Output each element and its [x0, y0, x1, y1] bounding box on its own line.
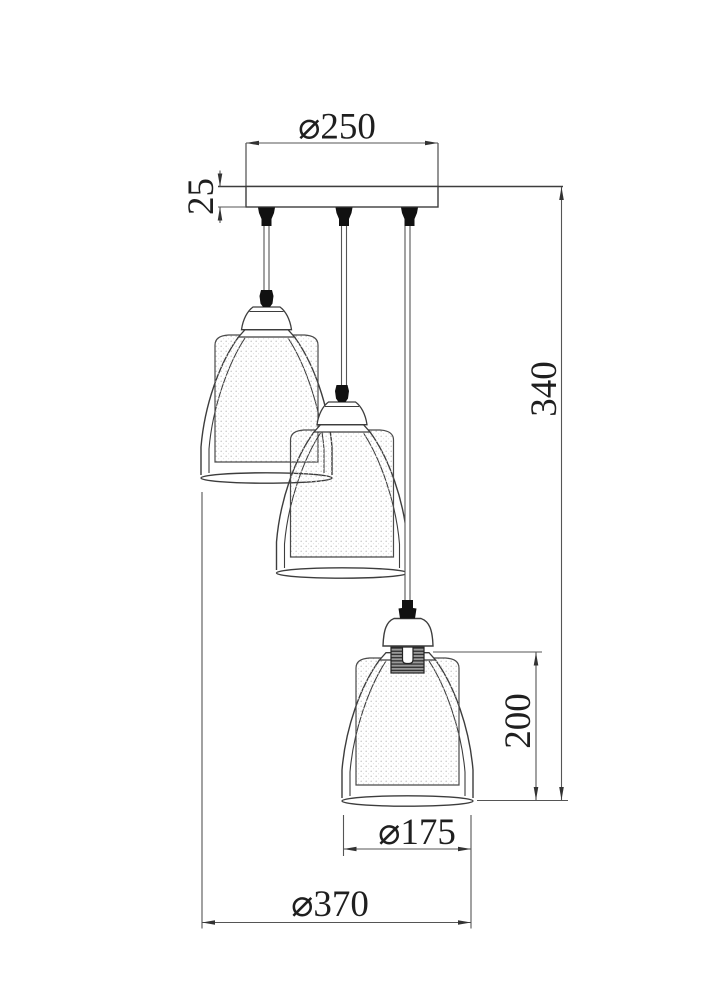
shade-3-socket-cup [383, 619, 433, 647]
shade-2-neck-band [314, 425, 370, 432]
shade-2-socket-cap [335, 385, 349, 402]
canopy-plate [246, 187, 438, 208]
label-shade-height: 200 [498, 693, 539, 749]
shade-2-bottom-rim [277, 568, 408, 578]
shade-2-frosted-inner [291, 430, 394, 557]
shade-3-frosted-inner [356, 658, 459, 785]
label-shade-diameter: ⌀175 [378, 812, 456, 853]
ceiling-canopy [218, 143, 563, 207]
label-canopy-thickness: 25 [181, 178, 222, 215]
canopy-cord-grips [258, 208, 418, 227]
cord-3-core [405, 226, 410, 602]
pendant-lamp-drawing: ⌀250 25 340 200 ⌀175 ⌀370 [0, 0, 707, 1000]
shade-3-bottom-rim [342, 796, 473, 806]
cord-1-core [264, 226, 269, 290]
shade-3-socket-contact [403, 647, 414, 664]
technical-drawing-page: ⌀250 25 340 200 ⌀175 ⌀370 [0, 0, 707, 1000]
shade-2-lamp-holder [317, 402, 367, 425]
label-canopy-diameter: ⌀250 [298, 107, 376, 148]
cord-grip-2 [336, 208, 353, 227]
cord-grip-3 [401, 208, 418, 227]
shade-3-socket-cap [399, 600, 417, 619]
cord-grip-1 [258, 208, 275, 227]
shade-1-neck-band [239, 330, 295, 337]
shade-3 [342, 600, 473, 806]
label-overall-width: ⌀370 [291, 884, 369, 925]
cord-2-core [342, 226, 347, 385]
label-drop-height: 340 [524, 361, 565, 417]
shade-1-lamp-holder [242, 307, 292, 330]
shade-1-socket-cap [260, 290, 274, 307]
dim-drop-height [559, 187, 564, 800]
